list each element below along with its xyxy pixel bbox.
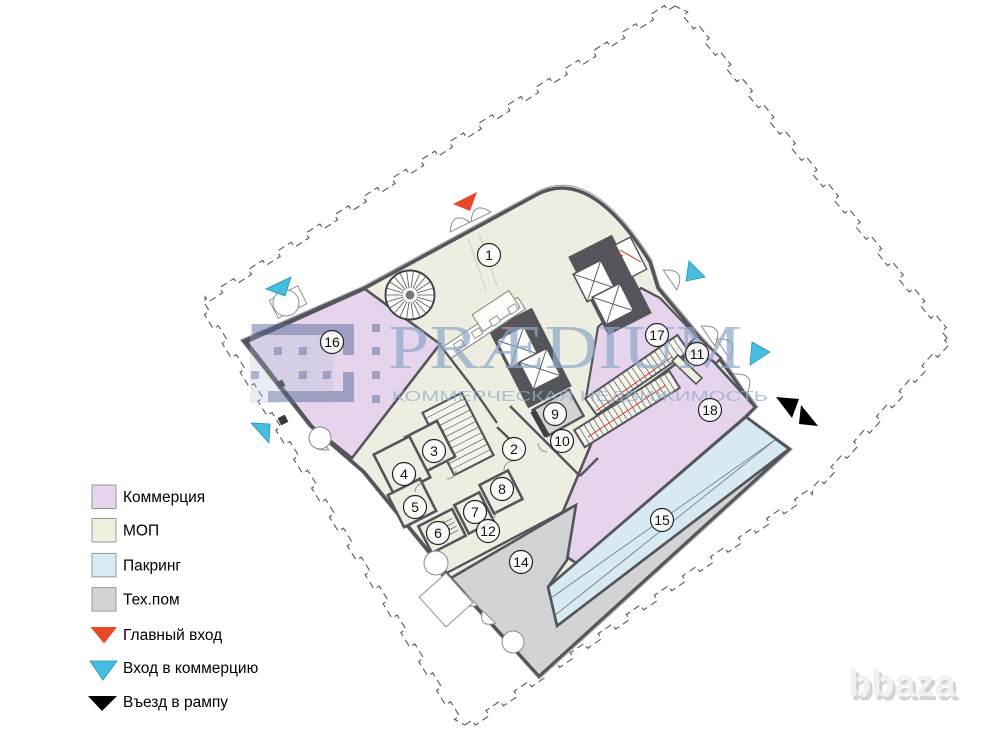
svg-text:4: 4 [400, 466, 408, 482]
svg-text:7: 7 [471, 504, 479, 520]
svg-text:16: 16 [324, 334, 340, 350]
svg-text:1: 1 [485, 247, 493, 263]
svg-text:12: 12 [480, 523, 496, 539]
svg-text:2: 2 [510, 441, 518, 457]
svg-text:8: 8 [498, 481, 506, 497]
svg-text:9: 9 [551, 406, 559, 422]
svg-text:3: 3 [430, 443, 438, 459]
svg-text:17: 17 [649, 327, 665, 343]
svg-text:Вход в коммерцию: Вход в коммерцию [123, 660, 258, 677]
svg-text:МОП: МОП [123, 523, 159, 540]
svg-text:Главный вход: Главный вход [123, 627, 222, 644]
svg-text:14: 14 [513, 554, 529, 570]
svg-text:18: 18 [702, 402, 718, 418]
svg-text:6: 6 [434, 525, 442, 541]
svg-text:Пакринг: Пакринг [123, 557, 181, 574]
svg-text:Въезд в рампу: Въезд в рампу [123, 694, 228, 711]
svg-text:15: 15 [654, 512, 670, 528]
svg-text:Тех.пом: Тех.пом [123, 592, 180, 609]
svg-text:Коммерция: Коммерция [123, 489, 205, 506]
svg-text:11: 11 [690, 346, 705, 362]
svg-text:10: 10 [554, 433, 570, 449]
svg-text:bbaza: bbaza [848, 663, 957, 705]
svg-text:5: 5 [411, 499, 419, 515]
